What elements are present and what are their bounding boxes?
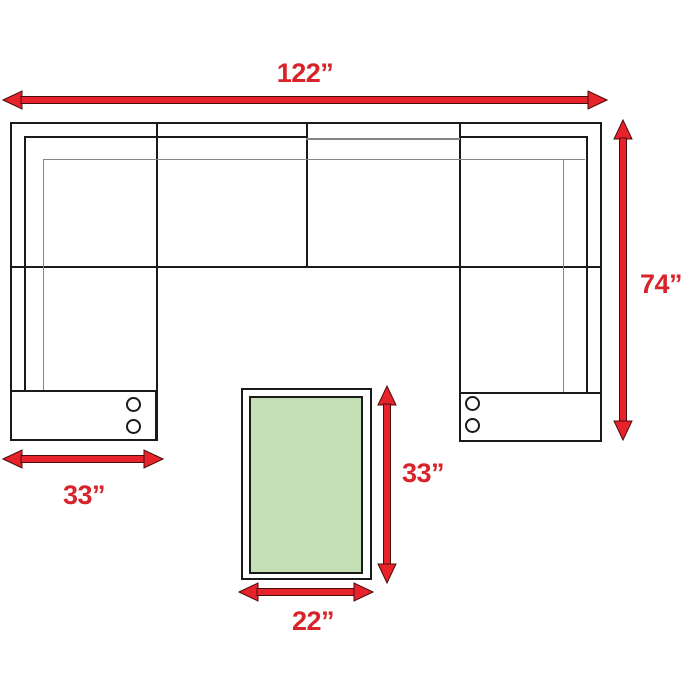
seat-line-left-vertical [43, 159, 44, 390]
overall-depth-arrow [611, 119, 635, 441]
right-console-cupholder-2 [465, 418, 480, 433]
overall-depth-label: 74” [634, 269, 688, 300]
right-arm-console [459, 392, 602, 442]
overall-width-arrow [2, 88, 608, 112]
overall-width-label: 122” [255, 58, 355, 89]
ottoman-width-label: 22” [263, 606, 363, 637]
section-divider-middle [306, 122, 308, 268]
left-console-cupholder-2 [126, 419, 141, 434]
back-cushion-line-right [459, 136, 588, 138]
ottoman-cushion-top [249, 396, 363, 574]
left-console-cupholder-1 [126, 397, 141, 412]
arm-width-arrow [2, 447, 164, 471]
ottoman-length-label: 33” [396, 458, 450, 489]
right-arm-inner-line [586, 136, 588, 392]
seat-line-right-vertical [563, 159, 564, 392]
left-arm-inner-line [24, 136, 26, 390]
seat-line-horizontal [43, 159, 585, 160]
sofa-dimension-diagram: 122” 74” 33” 33” 22” [0, 0, 700, 700]
ottoman-width-arrow [238, 580, 374, 604]
back-cushion-line-left [24, 136, 308, 138]
right-console-cupholder-1 [465, 396, 480, 411]
arm-width-label: 33” [34, 480, 134, 511]
back-cushion-line-middle [306, 138, 460, 140]
